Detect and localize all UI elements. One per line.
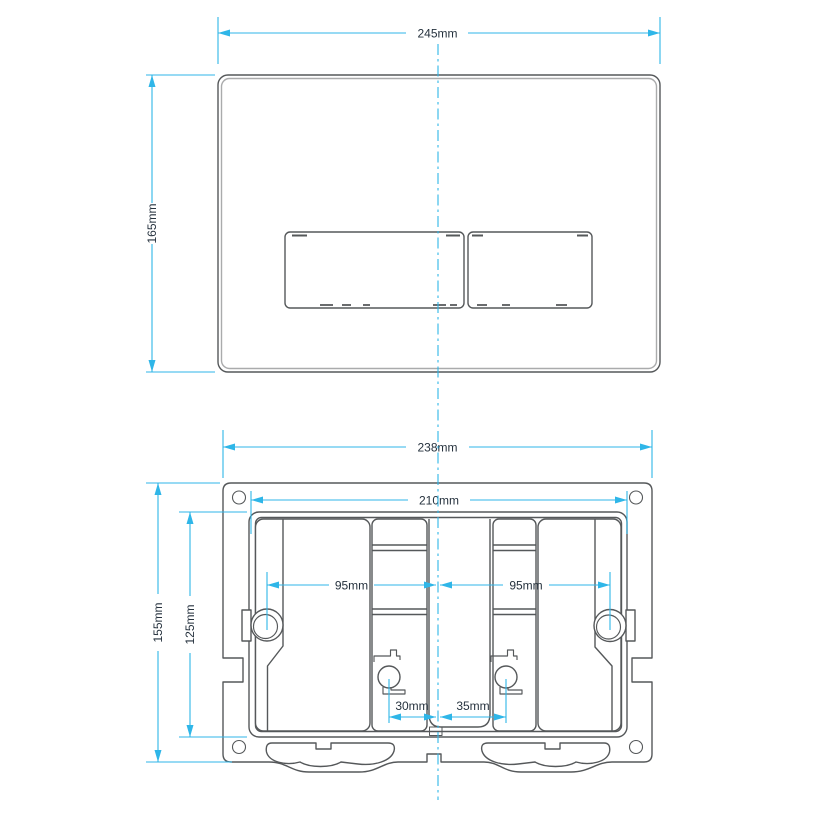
back-inner-height-label: 125mm	[183, 604, 197, 644]
dimension-front-height: 165mm	[145, 75, 215, 372]
blueprint-canvas: 245mm 165mm	[0, 0, 814, 814]
left-rod-offset-label: 30mm	[395, 699, 428, 713]
technical-drawing: 245mm 165mm	[0, 0, 814, 814]
left-spacing-label: 95mm	[335, 578, 368, 592]
back-inner-width-label: 210mm	[419, 493, 459, 507]
bottom-slot-left	[266, 743, 394, 767]
bottom-slot-right	[482, 743, 610, 767]
flush-button-small	[468, 232, 592, 308]
dimension-front-width: 245mm	[218, 17, 660, 64]
screw-hole-top-left	[233, 491, 246, 504]
front-height-label: 165mm	[145, 203, 159, 243]
back-outer-height-label: 155mm	[151, 602, 165, 642]
front-width-label: 245mm	[417, 26, 457, 40]
plate-outline	[218, 75, 660, 372]
screw-hole-bottom-right	[630, 741, 643, 754]
right-rod-offset-label: 35mm	[456, 699, 489, 713]
side-tab-left	[242, 610, 251, 641]
screw-hole-top-right	[630, 491, 643, 504]
side-tab-right	[626, 610, 635, 641]
flush-button-large	[285, 232, 464, 308]
screw-hole-bottom-left	[233, 741, 246, 754]
front-view	[218, 75, 660, 372]
right-spacing-label: 95mm	[509, 578, 542, 592]
